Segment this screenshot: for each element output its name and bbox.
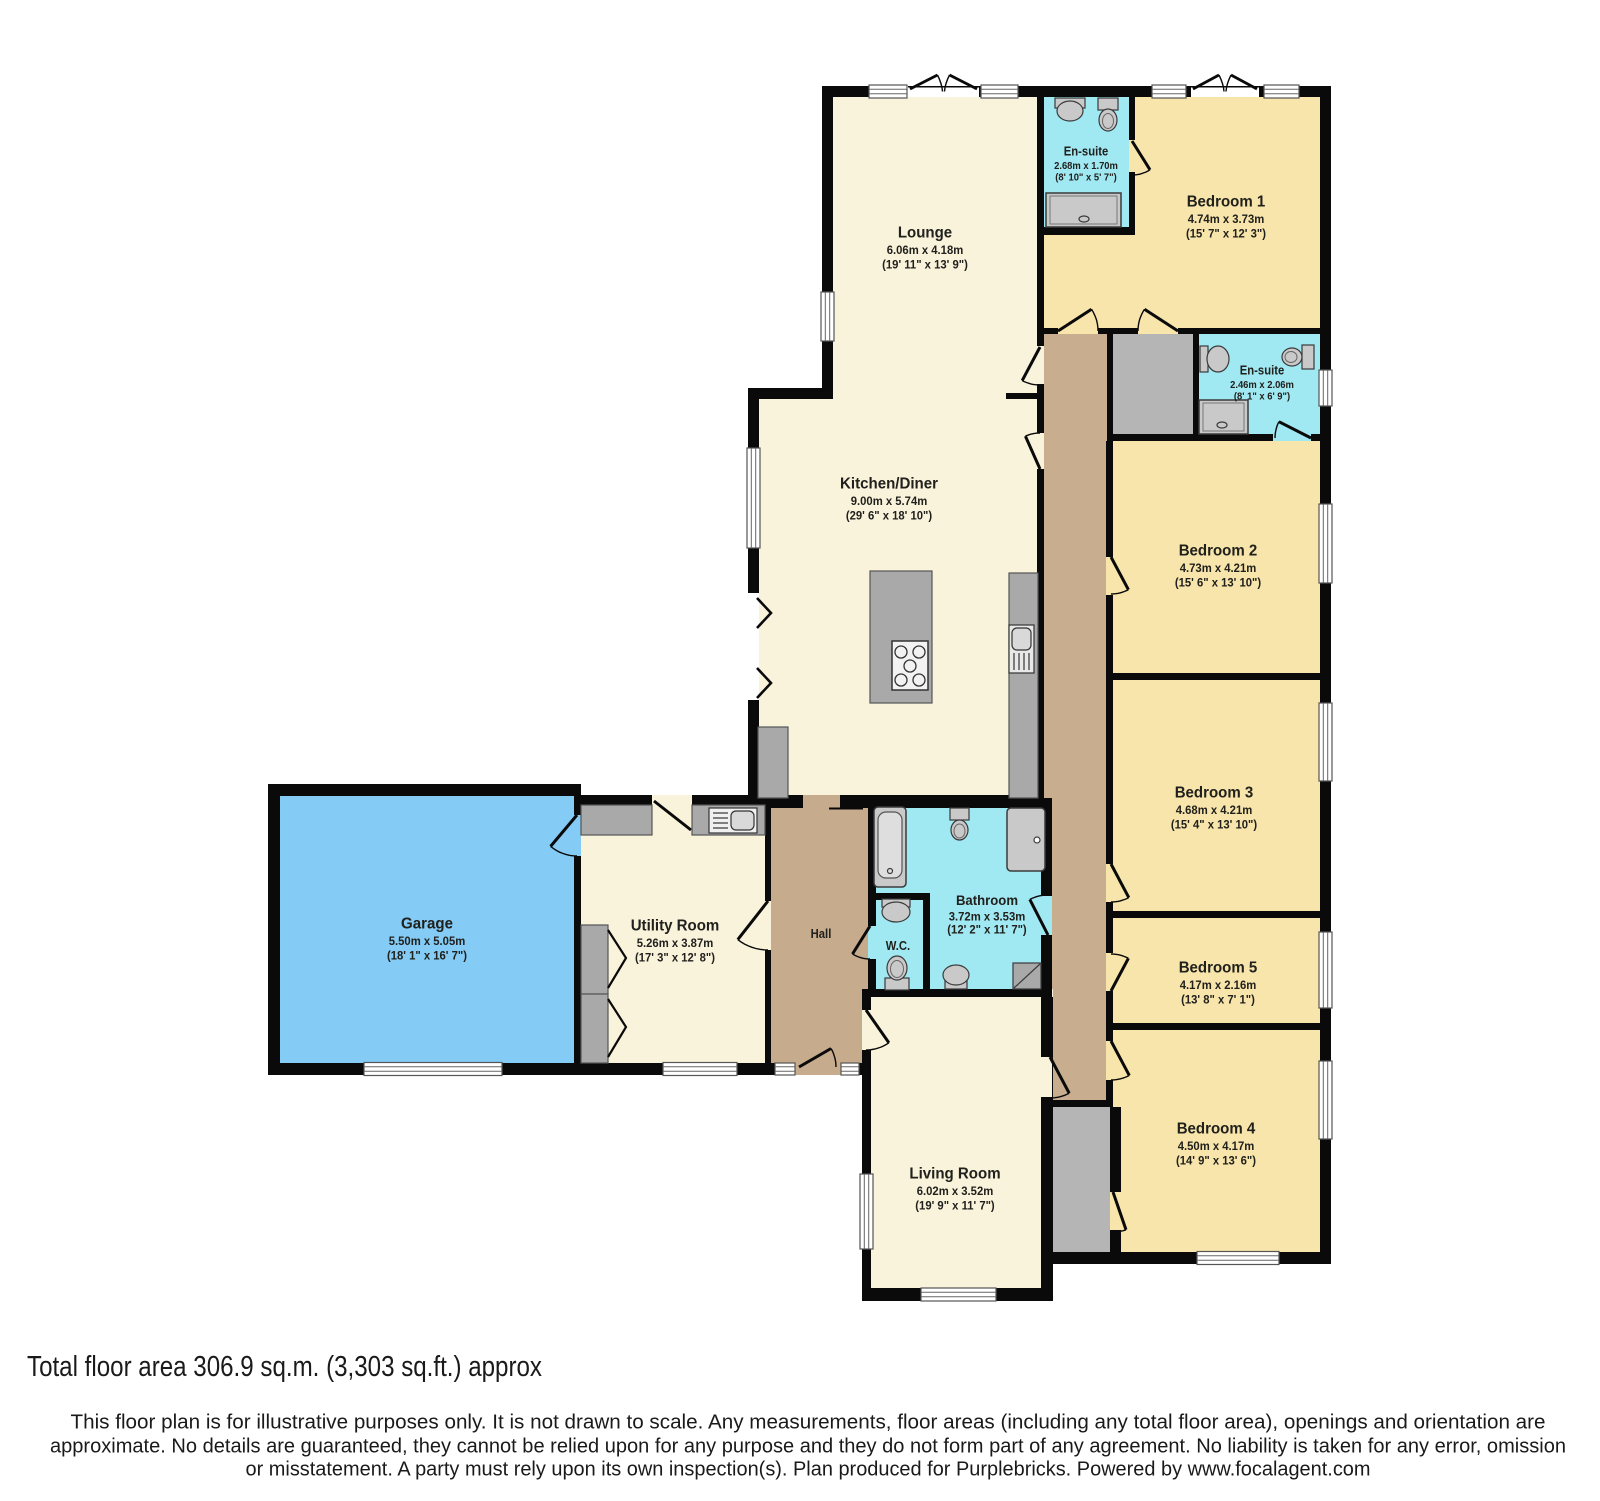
svg-text:(29' 6" x 18' 10"): (29' 6" x 18' 10") [846,508,932,522]
svg-text:(14' 9" x 13' 6"): (14' 9" x 13' 6") [1176,1153,1256,1167]
svg-text:(12' 2" x 11' 7"): (12' 2" x 11' 7") [947,922,1026,936]
svg-text:(17' 3" x 12' 8"): (17' 3" x 12' 8") [635,950,715,964]
svg-text:Total floor area 306.9 sq.m. (: Total floor area 306.9 sq.m. (3,303 sq.f… [27,1351,542,1383]
svg-text:(15' 7" x 12' 3"): (15' 7" x 12' 3") [1186,226,1266,240]
svg-text:(15' 4" x 13' 10"): (15' 4" x 13' 10") [1171,817,1257,831]
svg-text:(13' 8" x 7' 1"): (13' 8" x 7' 1") [1181,992,1255,1006]
svg-text:Kitchen/Diner: Kitchen/Diner [840,475,938,492]
svg-text:(8' 10" x 5' 7"): (8' 10" x 5' 7") [1055,171,1117,183]
svg-text:(19' 11" x 13' 9"): (19' 11" x 13' 9") [882,257,968,271]
svg-text:En-suite: En-suite [1064,144,1109,158]
svg-text:Bathroom: Bathroom [956,892,1018,908]
svg-text:Bedroom 1: Bedroom 1 [1187,193,1266,210]
svg-text:W.C.: W.C. [886,939,910,953]
svg-text:Bedroom 5: Bedroom 5 [1179,959,1258,976]
svg-text:(18' 1" x 16' 7"): (18' 1" x 16' 7") [387,948,467,962]
svg-text:4.68m x 4.21m: 4.68m x 4.21m [1176,803,1253,817]
svg-text:2.46m x 2.06m: 2.46m x 2.06m [1230,379,1294,391]
svg-text:4.73m x 4.21m: 4.73m x 4.21m [1180,561,1257,575]
svg-text:Bedroom 3: Bedroom 3 [1175,784,1254,801]
svg-text:or misstatement. A party must: or misstatement. A party must rely upon … [246,1459,1371,1481]
svg-text:Garage: Garage [401,915,453,932]
svg-text:Hall: Hall [811,927,832,941]
svg-text:En-suite: En-suite [1240,363,1285,377]
svg-text:4.50m x 4.17m: 4.50m x 4.17m [1178,1139,1255,1153]
svg-text:Bedroom 4: Bedroom 4 [1177,1120,1256,1137]
svg-text:(8' 1" x 6' 9"): (8' 1" x 6' 9") [1234,390,1290,402]
svg-text:Living Room: Living Room [909,1165,1000,1182]
svg-text:6.02m x 3.52m: 6.02m x 3.52m [917,1184,994,1198]
svg-text:(15' 6" x 13' 10"): (15' 6" x 13' 10") [1175,575,1261,589]
svg-text:2.68m x 1.70m: 2.68m x 1.70m [1054,160,1118,172]
svg-text:5.26m x 3.87m: 5.26m x 3.87m [637,936,714,950]
svg-text:(19' 9" x 11' 7"): (19' 9" x 11' 7") [915,1198,994,1212]
svg-text:4.17m x 2.16m: 4.17m x 2.16m [1180,978,1257,992]
svg-text:Utility Room: Utility Room [631,917,720,934]
svg-text:5.50m x 5.05m: 5.50m x 5.05m [389,934,466,948]
svg-text:6.06m x 4.18m: 6.06m x 4.18m [887,243,964,257]
svg-text:9.00m x 5.74m: 9.00m x 5.74m [851,494,928,508]
svg-text:approximate. No details are gu: approximate. No details are guaranteed, … [50,1436,1566,1458]
svg-text:3.72m x 3.53m: 3.72m x 3.53m [949,909,1026,923]
svg-text:Lounge: Lounge [898,224,953,241]
svg-text:This floor plan is for illustr: This floor plan is for illustrative purp… [71,1412,1546,1434]
svg-text:4.74m x 3.73m: 4.74m x 3.73m [1188,212,1265,226]
svg-text:Bedroom 2: Bedroom 2 [1179,542,1258,559]
